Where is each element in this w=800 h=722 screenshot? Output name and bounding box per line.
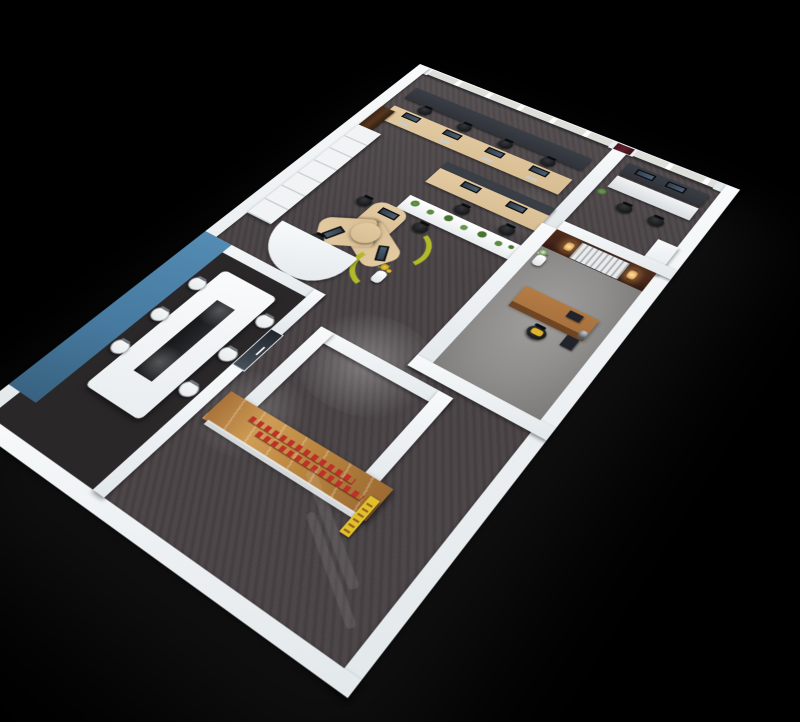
floor-plan xyxy=(0,64,740,698)
render-background xyxy=(0,0,800,600)
